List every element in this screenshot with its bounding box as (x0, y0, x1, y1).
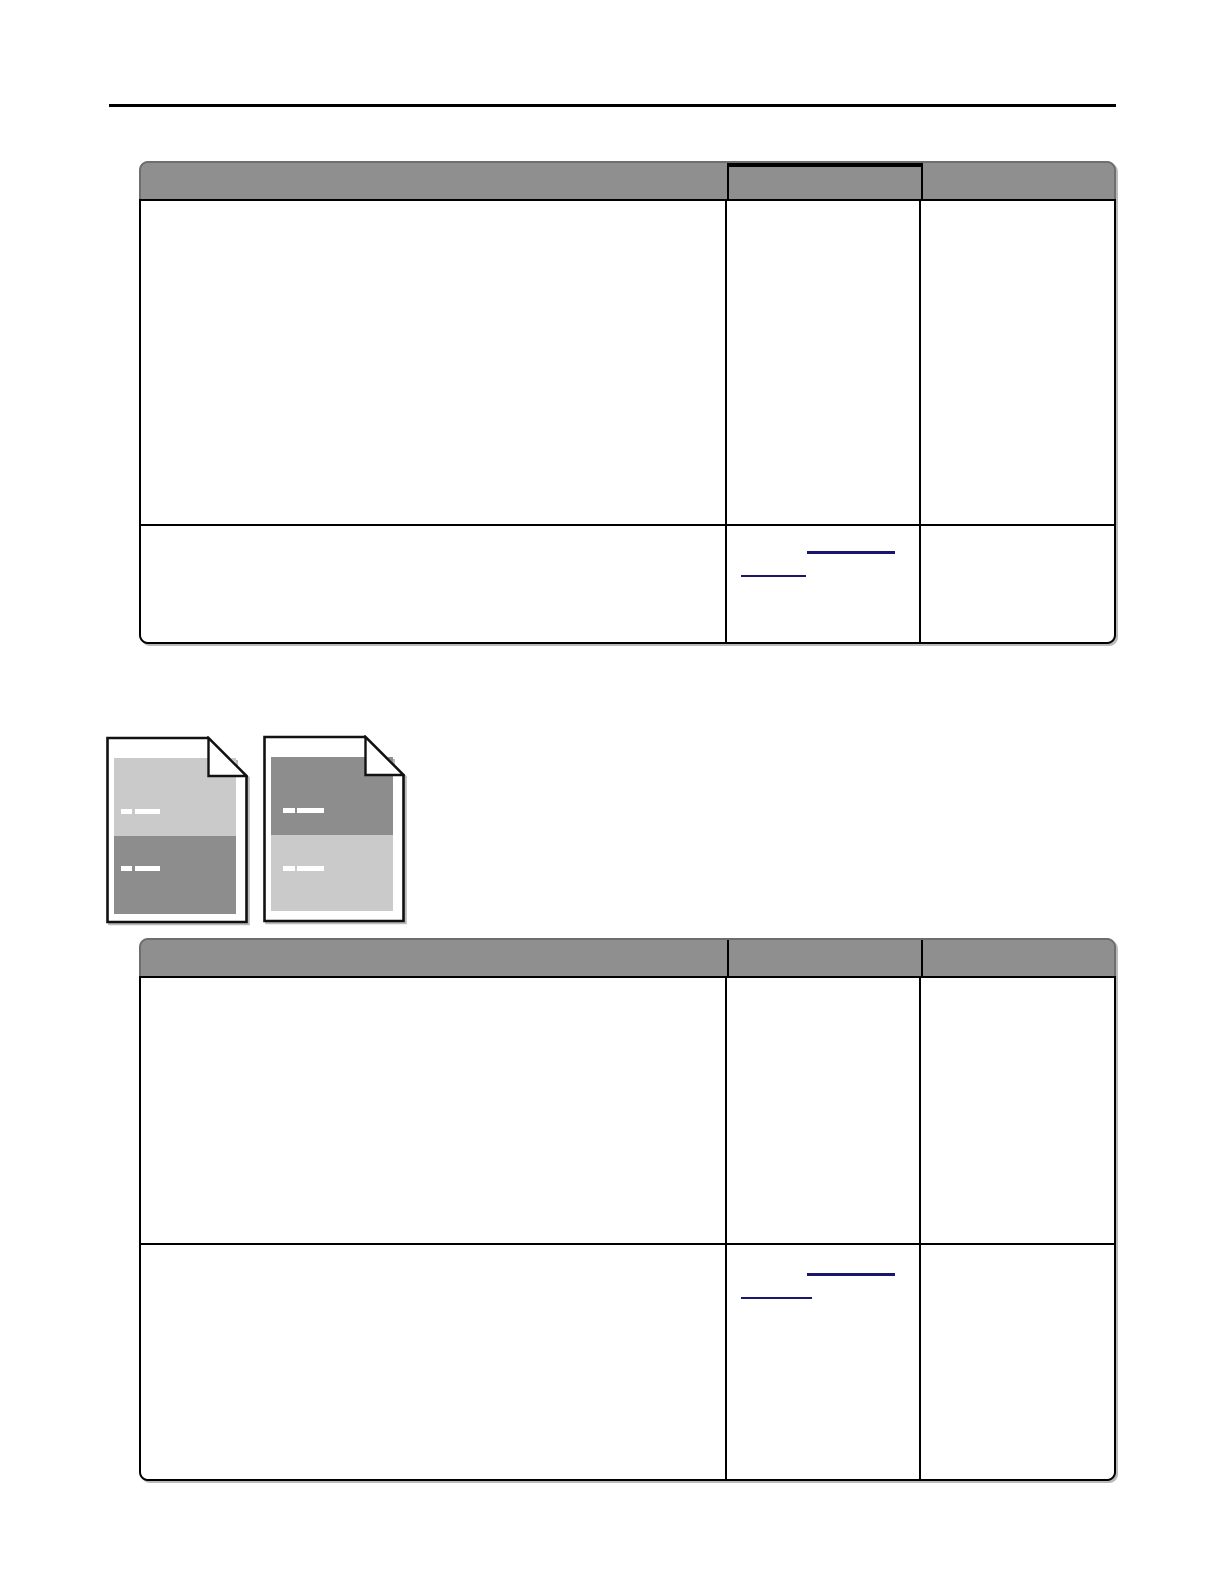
table-2-row-2-col-1 (141, 1245, 725, 1481)
text-dash (283, 866, 295, 871)
dog-ear-fold (209, 738, 247, 776)
table-2-row-1-col-2 (727, 978, 919, 1243)
text-dash (121, 866, 132, 871)
print-sample-bottom-block (271, 835, 393, 911)
hyperlink-underline[interactable] (807, 1273, 895, 1276)
table-2-row-1-col-3 (921, 978, 1114, 1243)
column-divider (921, 940, 923, 976)
table-2-header-col-1 (141, 940, 727, 976)
column-divider (727, 163, 729, 199)
table-1-body (139, 199, 1116, 644)
table-1-row-2-col-3 (921, 526, 1114, 644)
text-dash (121, 809, 132, 814)
header-rule (109, 104, 1116, 107)
page-dark-top-light-bottom-icon (263, 735, 405, 923)
troubleshooting-table-2 (139, 938, 1116, 1481)
header-top-accent-bar (728, 163, 922, 167)
table-1-header-col-1 (141, 163, 727, 199)
table-1-header-row (139, 161, 1116, 199)
text-dash (297, 808, 324, 813)
column-divider (921, 163, 923, 199)
table-1-row-2-col-1 (141, 526, 725, 644)
table-2-header-row (139, 938, 1116, 976)
table-1-row-1-col-1 (141, 201, 725, 524)
table-2-header-col-3 (923, 940, 1118, 976)
table-2-row-2-col-3 (921, 1245, 1114, 1481)
table-2-header-col-2 (729, 940, 921, 976)
dog-ear-fold (366, 737, 404, 775)
page-light-top-dark-bottom-icon (106, 736, 248, 924)
troubleshooting-table-1 (139, 161, 1116, 644)
table-1-row-1-col-2 (727, 201, 919, 524)
text-dash (283, 808, 295, 813)
table-1-row-1-col-3 (921, 201, 1114, 524)
text-dash (135, 866, 160, 871)
hyperlink-underline[interactable] (741, 1297, 812, 1299)
hyperlink-underline[interactable] (807, 551, 895, 554)
hyperlink-underline[interactable] (741, 575, 806, 577)
table-1-header-col-2 (729, 163, 921, 199)
text-dash (135, 809, 160, 814)
table-2-row-1-col-1 (141, 978, 725, 1243)
text-dash (297, 866, 324, 871)
print-sample-bottom-block (114, 836, 236, 914)
document-page (0, 0, 1224, 1584)
column-divider (727, 940, 729, 976)
table-1-header-col-3 (923, 163, 1118, 199)
table-2-body (139, 976, 1116, 1481)
